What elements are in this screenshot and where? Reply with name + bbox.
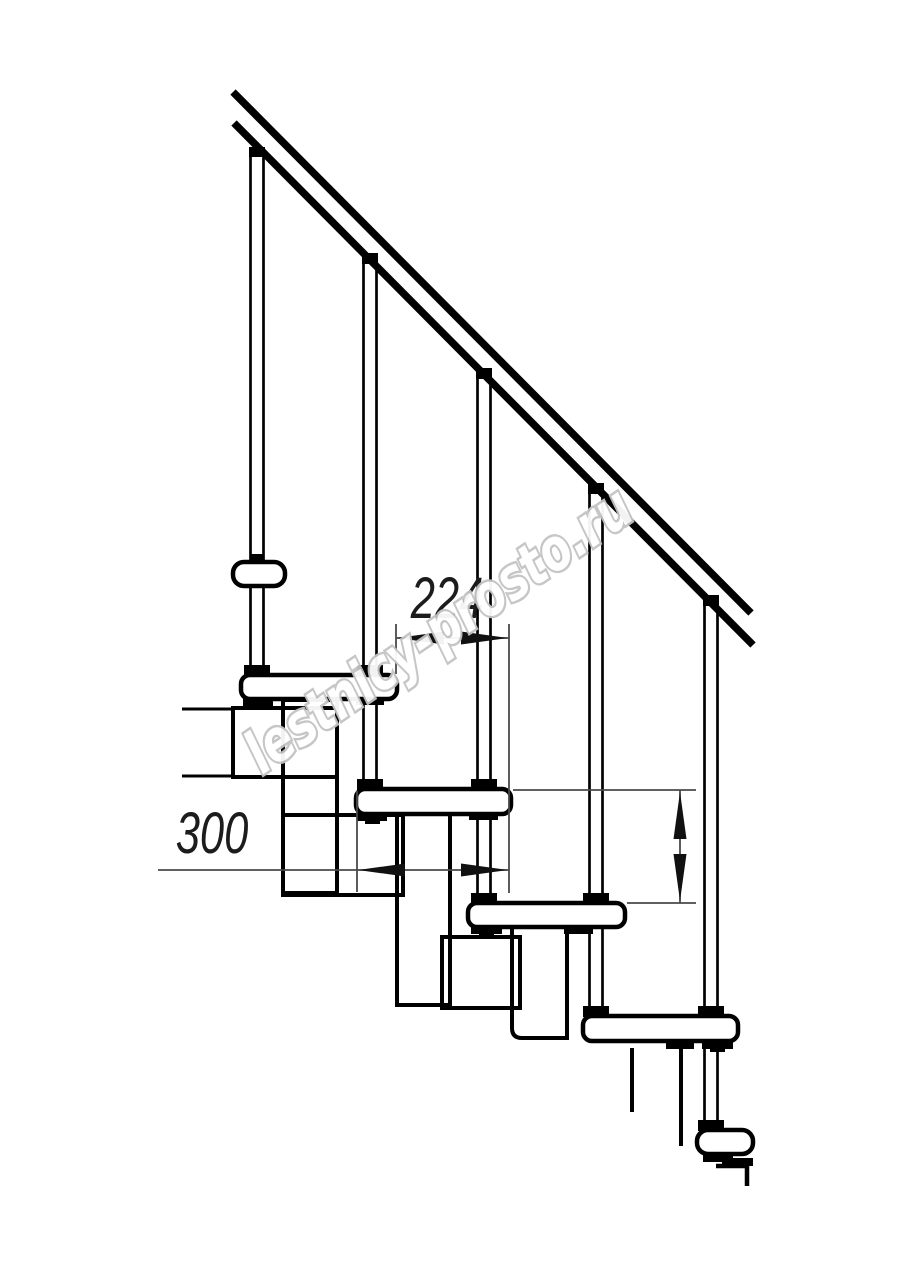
baluster — [251, 155, 264, 675]
baluster-collar — [251, 554, 264, 564]
baluster-flange — [702, 1041, 733, 1049]
baluster-collar — [357, 779, 383, 790]
balusters — [251, 155, 718, 1130]
baluster-flange — [564, 926, 593, 934]
baluster-collar — [698, 1120, 724, 1131]
baluster-flange — [469, 812, 498, 820]
baluster-collar — [471, 779, 497, 790]
baluster-flange — [710, 1048, 725, 1052]
baluster-collar — [583, 893, 609, 904]
watermark: lestnicy-prosto.ru — [231, 473, 644, 787]
arrowhead-down — [674, 854, 687, 901]
rail-cap — [703, 595, 719, 606]
baluster-flange — [722, 1158, 753, 1166]
bottom-step-profile — [716, 1166, 747, 1186]
baluster-collar — [244, 665, 270, 676]
dimension-225 — [513, 790, 696, 903]
baluster — [590, 492, 603, 1016]
baluster-collar — [583, 1006, 609, 1017]
baluster-flange — [666, 1041, 694, 1049]
module-box — [442, 937, 520, 1008]
baluster-collar — [471, 893, 497, 904]
module-box — [283, 815, 403, 895]
drawing-canvas: 224 300 lestnicy-prosto.ru — [0, 0, 914, 1280]
baluster-flange — [479, 933, 494, 937]
baluster-flange — [365, 820, 380, 824]
arrowhead-left — [358, 864, 405, 877]
rail-cap — [362, 253, 378, 264]
baluster-flange — [357, 813, 387, 821]
rail-cap — [249, 147, 265, 157]
baluster-collar — [698, 1006, 724, 1017]
staircase-technical-drawing: 224 300 lestnicy-prosto.ru — [0, 0, 914, 1280]
handrail-upper-line — [233, 92, 751, 613]
arrowhead-up — [674, 792, 687, 839]
tread — [468, 903, 625, 927]
tread-end-view — [697, 1130, 753, 1154]
tread-end-view — [233, 562, 285, 586]
dimension-label-300: 300 — [176, 801, 249, 865]
baluster-flange — [471, 926, 502, 934]
rail-cap — [476, 368, 492, 379]
tread — [356, 789, 511, 814]
tread — [583, 1016, 738, 1041]
